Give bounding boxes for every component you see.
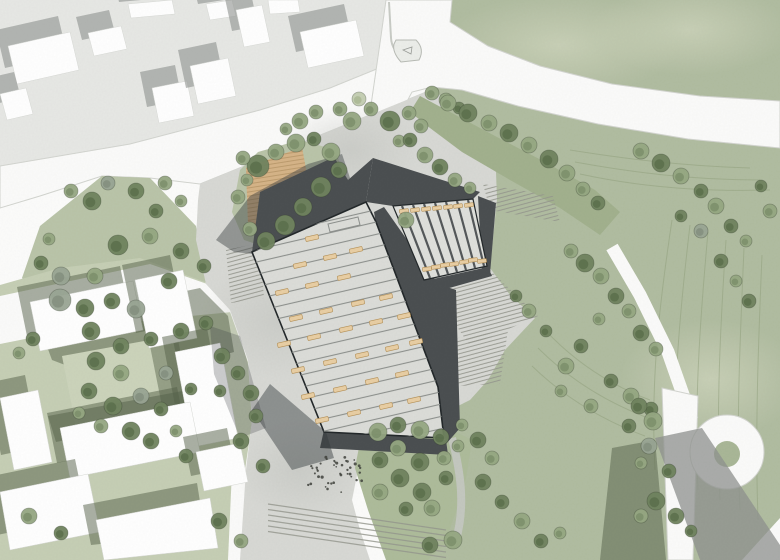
site-plan-svg	[0, 0, 780, 560]
texture-grain	[0, 0, 780, 560]
site-plan-canvas	[0, 0, 780, 560]
